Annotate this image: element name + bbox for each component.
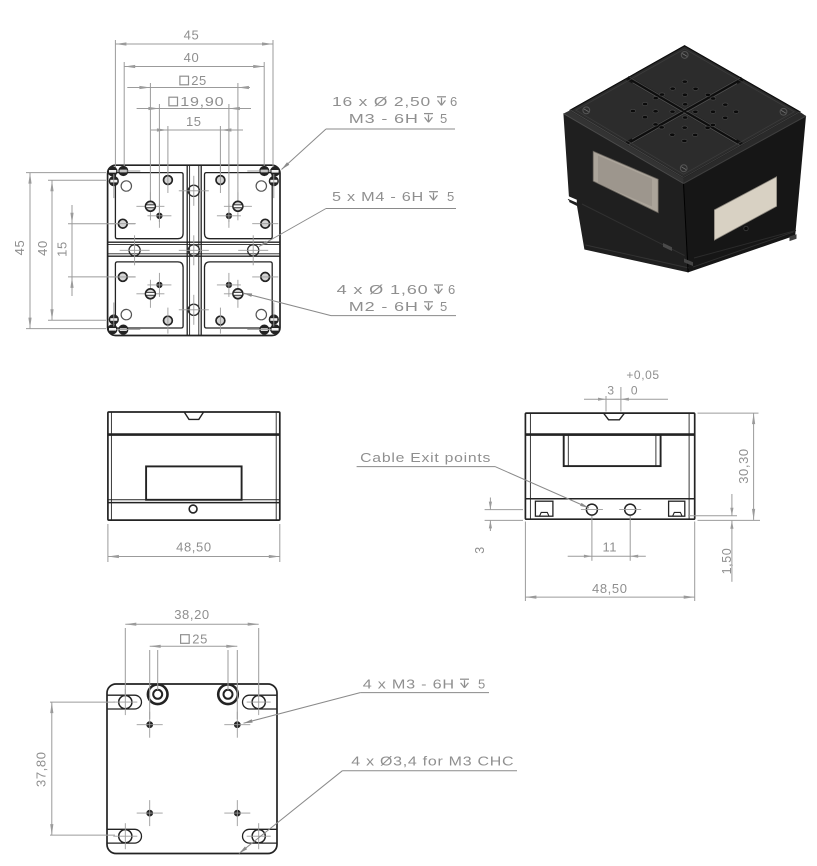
svg-text:48,50: 48,50 bbox=[176, 540, 212, 555]
svg-text:45: 45 bbox=[184, 28, 200, 43]
svg-text:4 x Ø3,4 for M3 CHC: 4 x Ø3,4 for M3 CHC bbox=[351, 754, 514, 769]
svg-text:4 x M3 - 6H: 4 x M3 - 6H bbox=[363, 676, 455, 691]
svg-text:3: 3 bbox=[607, 383, 614, 397]
svg-text:38,20: 38,20 bbox=[174, 607, 210, 622]
svg-text:15: 15 bbox=[55, 241, 70, 257]
svg-text:40: 40 bbox=[184, 50, 200, 65]
svg-text:5: 5 bbox=[440, 111, 448, 126]
svg-text:19,90: 19,90 bbox=[180, 94, 224, 109]
svg-text:5: 5 bbox=[440, 299, 448, 314]
svg-text:25: 25 bbox=[192, 631, 208, 646]
svg-text:Cable Exit points: Cable Exit points bbox=[360, 451, 491, 465]
svg-text:0: 0 bbox=[631, 383, 638, 397]
svg-text:5: 5 bbox=[478, 676, 486, 691]
svg-text:3: 3 bbox=[473, 546, 487, 554]
svg-text:1,50: 1,50 bbox=[720, 548, 734, 575]
svg-text:30,30: 30,30 bbox=[736, 448, 751, 484]
svg-text:37,80: 37,80 bbox=[34, 751, 49, 787]
svg-text:6: 6 bbox=[450, 94, 458, 109]
svg-text:4 x Ø 1,60: 4 x Ø 1,60 bbox=[337, 282, 429, 297]
svg-text:15: 15 bbox=[186, 114, 202, 129]
svg-text:45: 45 bbox=[12, 240, 27, 256]
svg-text:11: 11 bbox=[602, 540, 617, 555]
svg-text:M3 - 6H: M3 - 6H bbox=[349, 111, 419, 126]
svg-text:M2 - 6H: M2 - 6H bbox=[349, 299, 419, 314]
svg-text:40: 40 bbox=[35, 240, 50, 256]
svg-text:25: 25 bbox=[191, 73, 207, 88]
svg-text:+0,05: +0,05 bbox=[626, 368, 659, 382]
svg-text:48,50: 48,50 bbox=[592, 581, 628, 596]
svg-text:5 x M4 - 6H: 5 x M4 - 6H bbox=[332, 189, 424, 204]
svg-text:6: 6 bbox=[448, 282, 456, 297]
svg-text:16 x Ø 2,50: 16 x Ø 2,50 bbox=[332, 94, 431, 109]
svg-text:5: 5 bbox=[447, 189, 455, 204]
